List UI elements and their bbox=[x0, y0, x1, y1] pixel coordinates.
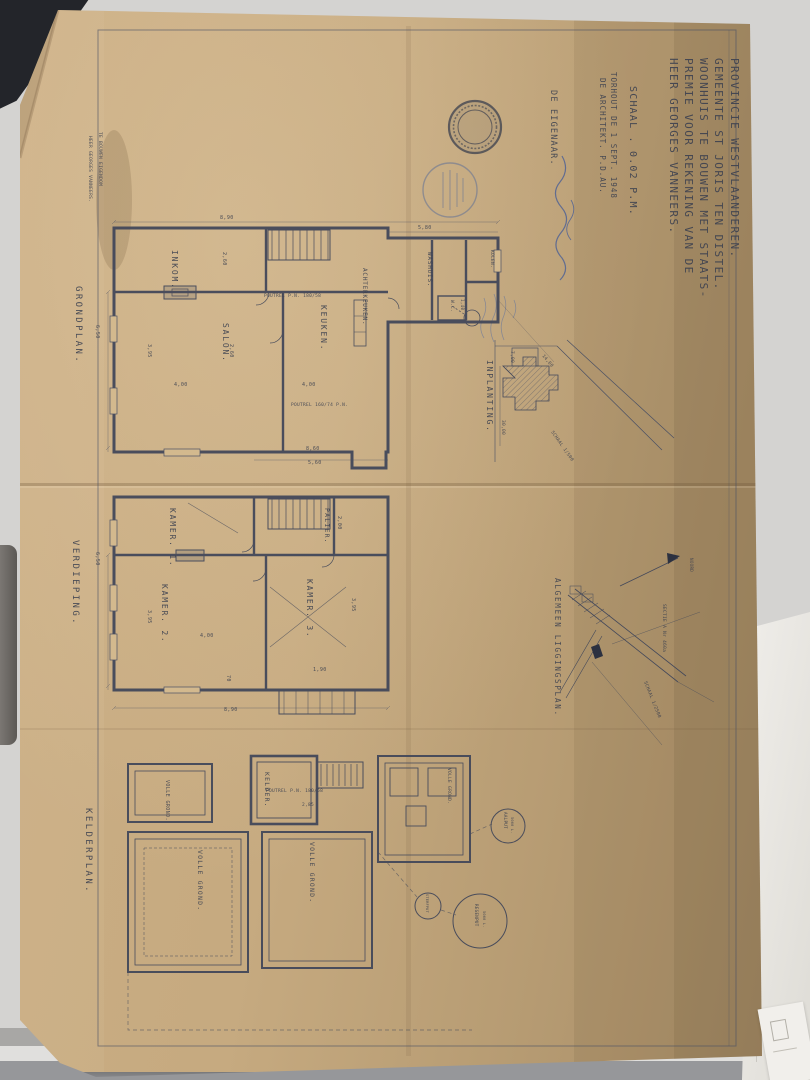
dim-k2-h: 3,95 bbox=[146, 610, 152, 624]
round-stamp-blue bbox=[423, 163, 477, 217]
title-line-3: WOONHUIS TE BOUWEN MET STAATS- bbox=[697, 58, 710, 299]
kelderplan: KELDERPLAN. bbox=[83, 756, 525, 1030]
dim-kelder-w: 2,85 bbox=[302, 802, 314, 808]
title-line-2: GEMEENTE ST JORIS TEN DISTEL. bbox=[712, 58, 725, 291]
north-label: NOORD bbox=[689, 558, 694, 572]
paper-creases bbox=[20, 0, 762, 1072]
photo-of-blueprint: PROVINCIE WESTVLAANDEREN. GEMEENTE ST JO… bbox=[0, 0, 810, 1080]
verdieping-title: VERDIEPING. bbox=[70, 540, 80, 626]
dim-k2-w: 4,00 bbox=[200, 633, 214, 639]
inplanting-title: INPLANTING. bbox=[485, 360, 494, 433]
owner-signature bbox=[555, 156, 573, 280]
volle-grond-4: VOLLE GROND. bbox=[446, 768, 452, 804]
room-kamer3: KAMER. 3. bbox=[305, 579, 314, 639]
dim-salon-w: 4,00 bbox=[174, 382, 188, 388]
dim-bottom-2: 5,60 bbox=[308, 460, 322, 466]
blueprint-drawing: PROVINCIE WESTVLAANDEREN. GEMEENTE ST JO… bbox=[14, 0, 762, 1072]
dim-left: 6,50 bbox=[94, 325, 100, 339]
title-line-4: PREMIE VOOR REKENING VAN DE bbox=[682, 58, 695, 275]
room-achterkeuken: ACHTERKEUKEN. bbox=[361, 268, 368, 325]
title-line-1: PROVINCIE WESTVLAANDEREN. bbox=[728, 58, 741, 259]
room-keuken: KEUKEN. bbox=[319, 305, 328, 351]
dim-inkom-w: 2,60 bbox=[221, 252, 227, 266]
volle-grond-3: VOLLE GROND. bbox=[308, 842, 316, 903]
room-kamer1: KAMER. 1. bbox=[168, 508, 177, 568]
chair-leg-object bbox=[0, 545, 17, 745]
owner-line: DE EIGENAAR. bbox=[548, 90, 558, 166]
dim-wc: 1,40 bbox=[460, 299, 465, 310]
round-stamp-dark bbox=[449, 101, 501, 153]
margin-note-line-1: TE BOUWEN EIGENDOM bbox=[97, 132, 103, 186]
dim-bottom-1: 8,60 bbox=[306, 446, 320, 452]
grondplan-title: GRONDPLAN. bbox=[73, 286, 83, 364]
grondplan: GRONDPLAN. bbox=[73, 215, 554, 468]
well-aalput: AALPUT bbox=[503, 812, 508, 829]
inplanting-dim-3: 7,00 bbox=[509, 351, 515, 363]
dim-step: 70 bbox=[225, 675, 231, 682]
dim-width-top: 8,90 bbox=[220, 215, 234, 221]
title-line-5: HEER GEORGES VANNEERS. bbox=[667, 58, 680, 235]
card-sketch-rect bbox=[770, 1019, 789, 1041]
place-date: TORHOUT DE 1 SEPT. 1948 bbox=[609, 72, 618, 199]
inplanting-scale: SCHAAL 1/500 bbox=[549, 430, 575, 463]
well-regenput: REGENPUT bbox=[474, 904, 479, 927]
dim-keuken-h: 2,60 bbox=[228, 344, 234, 358]
room-palier: PALIER. bbox=[323, 508, 331, 544]
verdieping: VERDIEPING. KAMER. 1. KAMER. bbox=[70, 497, 390, 714]
blueprint-paper: PROVINCIE WESTVLAANDEREN. GEMEENTE ST JO… bbox=[14, 0, 762, 1072]
dim-k3-h: 3,95 bbox=[350, 598, 356, 612]
well-regenput-capacity: 5000 L. bbox=[482, 911, 486, 928]
margin-note-line-2: HEER GEORGES VANNEERS. bbox=[87, 136, 93, 202]
well-sterfput: STERFPUT bbox=[425, 894, 429, 914]
kelder-beam-note: POUTREL P.N. 180/58 bbox=[266, 788, 323, 794]
room-kamer2: KAMER. 2. bbox=[160, 584, 169, 644]
dim-annex-width: 5,80 bbox=[418, 225, 432, 231]
card-sketch-line bbox=[773, 1047, 797, 1052]
architect-line: DE ARCHITEKT. P.D.AU. bbox=[598, 78, 607, 194]
inplanting-dim-1: 30,00 bbox=[500, 420, 506, 435]
room-wc: W.C. bbox=[449, 300, 455, 312]
volle-grond-2: VOLLE GROND. bbox=[196, 850, 204, 911]
room-inkom: INKOM. bbox=[170, 250, 179, 290]
dim-verd-left: 6,50 bbox=[94, 552, 100, 566]
beam-note-1: POUTREL P.N. 180/58 bbox=[264, 293, 321, 299]
dim-verd-bottom: 8,90 bbox=[224, 707, 238, 713]
dim-keuken-w: 4,00 bbox=[302, 382, 316, 388]
room-washuis: WASHUIS. bbox=[426, 252, 433, 287]
dim-salon-h: 3,95 bbox=[146, 344, 152, 358]
room-kolen: KOLEN. bbox=[489, 250, 495, 268]
scale-note: SCHAAL . 0.02 P.M. bbox=[627, 86, 638, 216]
volle-grond-1: VOLLE GROND. bbox=[164, 780, 170, 821]
dim-terrace: 1,90 bbox=[313, 667, 327, 673]
kelderplan-title: KELDERPLAN. bbox=[83, 808, 93, 894]
ligging-title: ALGEMEEN LIGGINGSPLAN. bbox=[553, 578, 562, 717]
dim-palier: 2,00 bbox=[336, 516, 342, 530]
well-aalput-capacity: 5000 L. bbox=[510, 817, 514, 834]
sectie-label: SECTIE A Nr 460a bbox=[661, 604, 667, 652]
beam-note-2: POUTREL 160/74 P.N. bbox=[291, 402, 348, 408]
